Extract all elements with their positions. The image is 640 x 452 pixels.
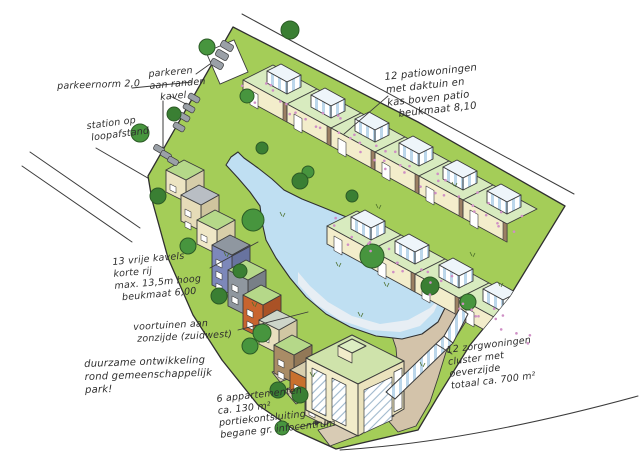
site-sketch-page: parkeernorm 2,0 parkeren aan randen kave…: [0, 0, 640, 452]
annotation-free-plots: 13 vrije kavels korte rij max. 13,5m hoo…: [112, 249, 203, 305]
annotation-care-homes: 12 zorgwoningen cluster met oeverzijde t…: [446, 335, 537, 394]
annotation-front-gardens: voortuinen aan zonzijde (zuidwest): [133, 317, 233, 346]
annotation-parking-edges: parkeren aan randen kavel: [148, 64, 207, 105]
annotation-patio-houses: 12 patiowoningen met daktuin en kas bove…: [384, 62, 482, 123]
annotation-sustainable: duurzame ontwikkeling rond gemeenschappe…: [84, 355, 213, 398]
